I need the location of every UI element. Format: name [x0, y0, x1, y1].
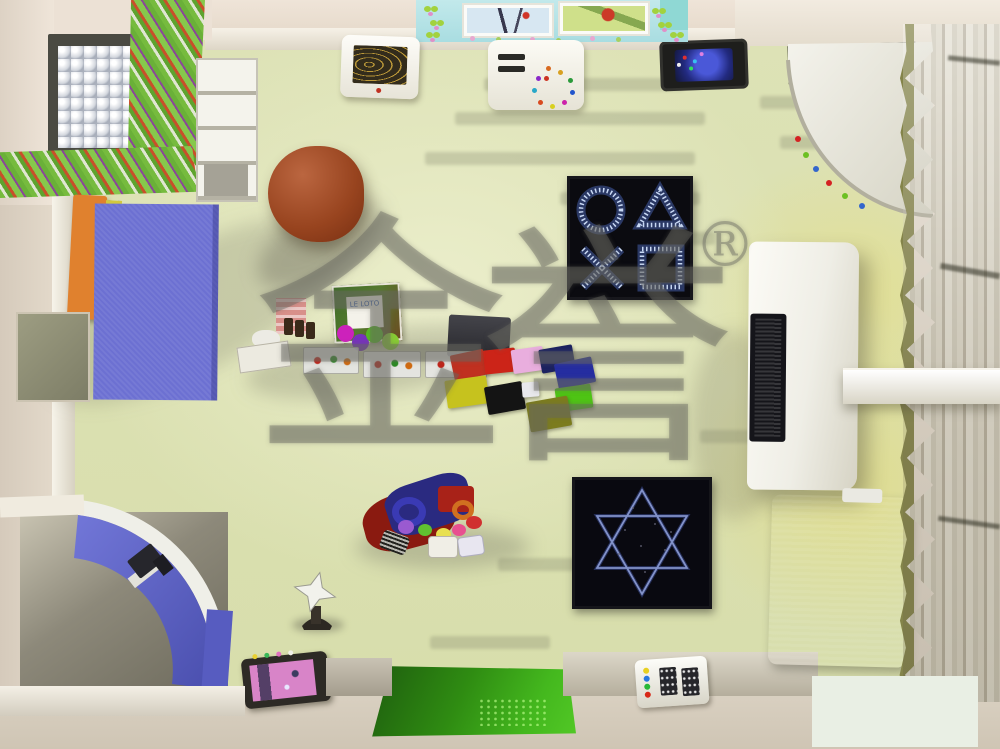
- butterfly-decal: [652, 8, 659, 14]
- blue-mattress: [768, 494, 910, 668]
- tablet-indicator-lights: [252, 654, 257, 659]
- toy-bit: [418, 524, 432, 536]
- faint-text-row: [425, 152, 695, 165]
- mural-picture-frame: [462, 3, 554, 38]
- playroom-top-view-render: 金 誉 ® LE LOTO: [0, 0, 1000, 749]
- bottom-wall-ledge: [0, 686, 245, 716]
- toy-bit: [452, 524, 466, 536]
- star-icon: [290, 570, 342, 632]
- butterfly-decal: [670, 32, 677, 38]
- curtain: [903, 24, 1000, 702]
- watermark-character-left: 金: [252, 212, 510, 470]
- star-lamp: [290, 570, 342, 632]
- toy-cards: [428, 536, 458, 558]
- panel-slot: [498, 54, 525, 60]
- toy-bit: [466, 516, 482, 529]
- green-floor-mat: [368, 660, 576, 738]
- mat-speckles: [478, 698, 550, 726]
- panel-display: [674, 48, 733, 82]
- tablet-screen: [249, 659, 316, 701]
- wall-control-panel: [634, 656, 709, 709]
- flower-decal: [470, 36, 475, 41]
- mural-picture-frame: [558, 1, 650, 36]
- mural-picture-planes: [467, 8, 549, 33]
- mural-picture-helicopter: [563, 6, 645, 31]
- wall-mural: [416, 0, 688, 42]
- shelf-open-cell: [204, 164, 248, 196]
- mattress-pillow: [842, 488, 882, 503]
- faint-text-row: [455, 112, 705, 125]
- flower-decal: [590, 36, 595, 41]
- tactile-panel-inset: [352, 45, 407, 85]
- blue-play-mat: [93, 203, 219, 400]
- panel-indicator: [376, 88, 381, 93]
- alcove-top-edge: [0, 495, 84, 518]
- toy-cards: [457, 534, 486, 557]
- curved-canopy: [14, 492, 254, 702]
- butterfly-decal: [430, 20, 437, 26]
- tv-bezel: [749, 314, 786, 442]
- bottom-wall-ledge: [326, 658, 392, 696]
- panel-slot: [498, 66, 525, 72]
- panel-color-wheel: [544, 76, 549, 81]
- cube-shelf: [196, 58, 258, 202]
- activity-wall-panel: [488, 40, 584, 110]
- toy-bit: [398, 520, 414, 534]
- tv-cabinet: [747, 242, 859, 491]
- blank-overlay-box: [812, 676, 978, 747]
- faint-text-row: [430, 636, 550, 649]
- ball-pool-balls: [58, 46, 132, 148]
- dark-wall-panel: [659, 38, 749, 91]
- butterfly-decal: [424, 6, 431, 12]
- wall-niche: [16, 312, 90, 402]
- keypad: [681, 667, 700, 696]
- colored-buttons: [643, 668, 649, 674]
- striped-partition-horizontal: [0, 146, 198, 198]
- butterfly-decal: [426, 32, 433, 38]
- tactile-wall-panel: [340, 35, 420, 100]
- registered-trademark-icon: ®: [694, 214, 756, 276]
- control-tablet: [241, 651, 332, 710]
- side-table: [843, 368, 1000, 404]
- tv-screen: [754, 319, 781, 437]
- butterfly-decal: [658, 22, 665, 28]
- keypad: [659, 667, 678, 696]
